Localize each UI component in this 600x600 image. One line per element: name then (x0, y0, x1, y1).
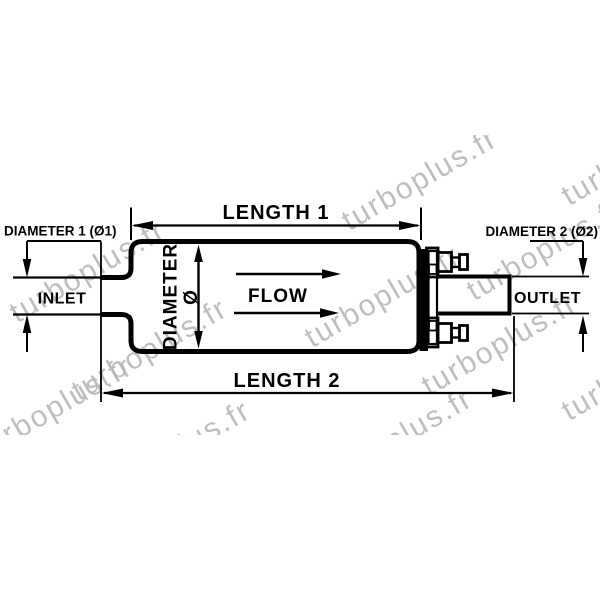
length1-label: LENGTH 1 (223, 202, 330, 224)
diameter1-arrow-down (23, 259, 32, 278)
pump-diagram-svg: LENGTH 1 LENGTH 2 DIAMETER 1 (Ø1) DIAMET… (0, 0, 600, 600)
diameter-arrow-up (194, 245, 203, 263)
diameter2-arrow-up (579, 316, 588, 335)
diameter2-arrow-down (579, 258, 588, 277)
dim-diameter2: DIAMETER 2 (Ø2) (485, 224, 598, 352)
outlet-tube (438, 277, 510, 314)
inlet-label: INLET (38, 291, 87, 308)
terminal-base-detail (429, 265, 437, 275)
diameter-label: DIAMETER (161, 243, 182, 350)
length1-arrow-right (399, 221, 421, 230)
dim-diameter1: DIAMETER 1 (Ø1) (4, 224, 117, 353)
length1-arrow-left (132, 221, 154, 230)
terminal-nut (438, 324, 452, 343)
diameter1-arrow-up (23, 315, 32, 334)
terminal-base-detail (429, 321, 437, 331)
flow-arrow-top-head (322, 269, 341, 279)
outlet-label: OUTLET (514, 290, 581, 307)
length2-arrow-right (492, 389, 514, 398)
diameter-arrow-down (194, 331, 203, 349)
diagram-canvas: turboplus.frturboplus.frturboplus.frturb… (0, 0, 600, 600)
terminal-tip (460, 326, 468, 341)
terminal-top (427, 248, 468, 277)
flow-annotation: FLOW (234, 269, 341, 318)
terminal-nut (438, 253, 452, 272)
flow-arrow-bottom-head (320, 308, 339, 318)
flow-label: FLOW (248, 286, 308, 307)
terminal-bottom (427, 318, 468, 347)
terminal-tip (460, 255, 468, 270)
inlet-fillet-top (102, 269, 132, 278)
diameter2-label: DIAMETER 2 (Ø2) (485, 224, 598, 239)
length2-arrow-left (102, 389, 124, 398)
length2-label: LENGTH 2 (234, 370, 341, 392)
diameter-symbol: Ø (181, 289, 202, 305)
inlet-fillet-bottom (102, 315, 132, 324)
diameter1-label: DIAMETER 1 (Ø1) (4, 224, 117, 239)
dim-length1: LENGTH 1 (131, 202, 421, 240)
dim-diameter-inner: DIAMETER Ø (161, 243, 203, 350)
